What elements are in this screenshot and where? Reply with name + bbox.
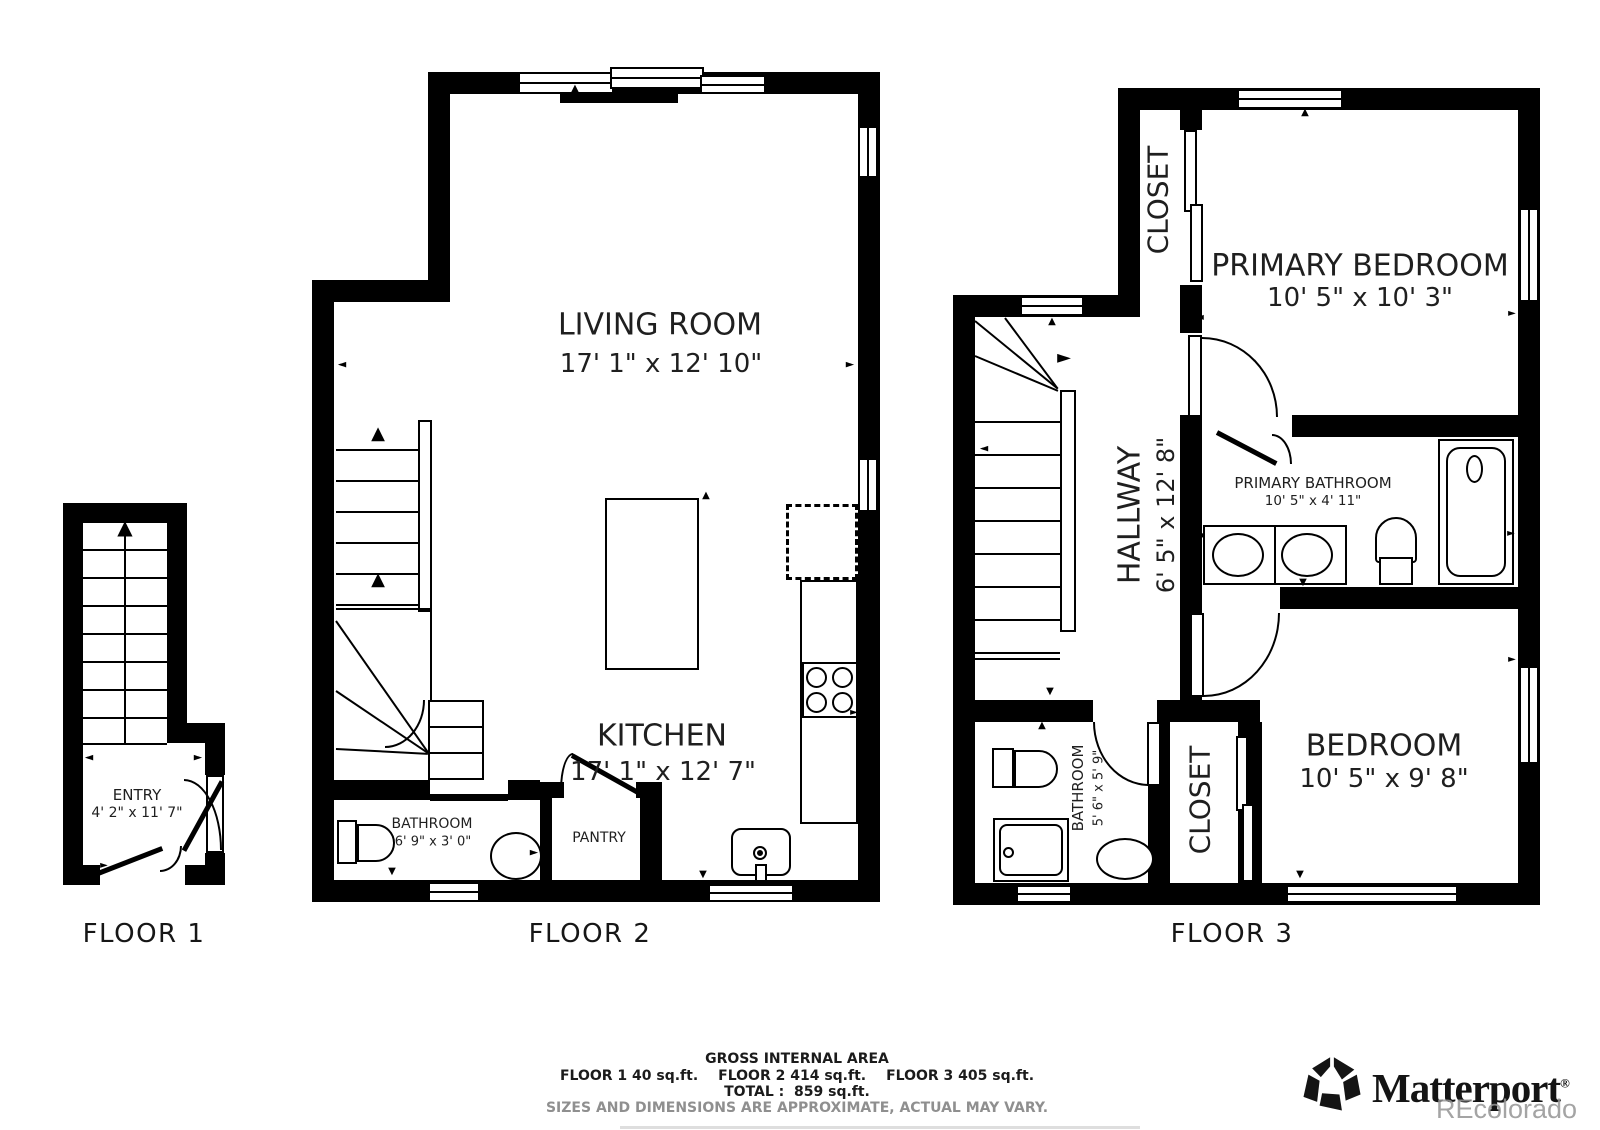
wall [953, 295, 975, 905]
door-swing-arc [1272, 434, 1292, 464]
wall [640, 782, 662, 880]
sink-basin [1096, 838, 1154, 880]
window [858, 126, 878, 178]
toilet-base [1379, 557, 1413, 585]
room-dims-entry: 4' 2" x 11' 7" [91, 805, 182, 821]
wall [1180, 285, 1202, 333]
direction-arrow-icon: ▼ [1046, 687, 1054, 697]
direction-arrow-icon: ▼ [699, 870, 707, 880]
room-label-bedroom: BEDROOM [1306, 729, 1463, 764]
door-swing-arc [1204, 613, 1280, 697]
closet-sliding-door [1242, 804, 1254, 882]
room-label-kitchen: KITCHEN [597, 719, 727, 754]
wall [205, 743, 225, 775]
stair-edge-line [83, 743, 167, 745]
window [1016, 885, 1072, 903]
registered-mark: ® [1560, 1075, 1569, 1090]
room-dims-living: 17' 1" x 12' 10" [560, 349, 762, 379]
recolorado-watermark: REcolorado [1436, 1094, 1577, 1125]
closet-sliding-door [1190, 204, 1203, 282]
direction-arrow-icon: ▼ [388, 867, 396, 877]
room-label-closet-upper: CLOSET [1142, 146, 1175, 255]
staircase [428, 700, 484, 780]
floor1-label: FLOOR 1 [83, 919, 206, 949]
direction-arrow-icon: ► [194, 752, 202, 763]
direction-arrow-icon: ► [1508, 309, 1516, 319]
floor3-label: FLOOR 3 [1171, 919, 1294, 949]
toilet-bowl [1014, 750, 1058, 788]
stair-up-arrow-icon: ▲ [117, 517, 132, 537]
door-swing-arc [1202, 337, 1278, 417]
toilet-tank [992, 748, 1014, 788]
door-leaf [1188, 335, 1202, 417]
direction-arrow-icon: ◄ [1196, 531, 1204, 541]
stair-up-arrow-icon: ▲ [371, 425, 385, 443]
shower-drain [1003, 847, 1014, 858]
wall [312, 880, 880, 902]
window [428, 882, 480, 902]
room-dims-bathroom3: 5' 6" x 5' 9" [1092, 750, 1107, 826]
wall [508, 780, 540, 800]
room-label-hallway: HALLWAY [1113, 446, 1148, 584]
disclaimer: SIZES AND DIMENSIONS ARE APPROXIMATE, AC… [546, 1100, 1048, 1116]
wall [334, 780, 430, 800]
window [1286, 885, 1458, 903]
floor3-area: FLOOR 3 405 sq.ft. [886, 1068, 1034, 1084]
direction-arrow-icon: ▲ [1301, 108, 1309, 118]
room-dims-bedroom: 10' 5" x 9' 8" [1299, 764, 1468, 794]
stair-edge-line [975, 658, 1060, 660]
matterport-logo-icon [1301, 1056, 1363, 1118]
faucet-stub [755, 864, 767, 882]
floor1-area: FLOOR 1 40 sq.ft. [560, 1068, 698, 1084]
stair-edge-line [430, 610, 432, 702]
wall [1180, 110, 1202, 130]
toilet-tank [337, 820, 357, 864]
page-edge-artifact [620, 1126, 1140, 1129]
direction-arrow-icon: ► [1507, 529, 1515, 539]
stair-winder-line [336, 748, 428, 755]
stove-burner [806, 692, 827, 713]
door-leaf [1147, 722, 1161, 786]
direction-arrow-icon: ► [530, 847, 538, 858]
room-dims-hallway: 6' 5" x 12' 8" [1152, 437, 1180, 593]
wall [1118, 88, 1140, 317]
direction-arrow-icon: ◄ [338, 359, 346, 370]
direction-arrow-icon: ▲ [1038, 721, 1046, 731]
wall [1157, 700, 1260, 722]
sink-basin [1212, 533, 1264, 577]
room-dims-kitchen: 17' 1" x 12' 7" [570, 757, 756, 787]
direction-arrow-icon: ▲ [571, 84, 579, 94]
wall [1292, 415, 1518, 437]
toilet-bowl [357, 824, 395, 862]
room-label-bathroom3: BATHROOM [1069, 745, 1087, 832]
wall [167, 503, 187, 743]
refrigerator [786, 504, 858, 580]
wall [167, 723, 225, 743]
window [1020, 296, 1084, 316]
stair-railing [1060, 390, 1076, 632]
wall [185, 865, 225, 885]
direction-arrow-icon: ► [1508, 655, 1516, 665]
sink-basin [1281, 533, 1333, 577]
direction-arrow-icon: ▲ [395, 784, 403, 794]
direction-arrow-icon: ◄ [980, 443, 988, 454]
vanity-divider [1274, 525, 1276, 585]
room-label-living: LIVING ROOM [558, 308, 762, 343]
floor2-label: FLOOR 2 [529, 919, 652, 949]
wall [312, 280, 334, 902]
direction-arrow-icon: ▼ [1299, 578, 1307, 588]
room-label-primary-bedroom: PRIMARY BEDROOM [1211, 249, 1509, 284]
staircase [975, 390, 1060, 660]
direction-arrow-icon: ► [100, 861, 108, 871]
floor-areas-line: FLOOR 1 40 sq.ft. FLOOR 2 414 sq.ft. FLO… [560, 1068, 1034, 1084]
door-swing-arc [160, 846, 182, 872]
stove-burner [806, 667, 827, 688]
stair-edge-line [336, 608, 432, 610]
door-leaf [1190, 613, 1204, 697]
stair-center-line [124, 523, 126, 745]
direction-arrow-icon: ► [846, 359, 854, 370]
window [858, 458, 878, 512]
wall [63, 503, 83, 885]
wall [1280, 587, 1518, 609]
direction-arrow-icon: ▲ [702, 491, 710, 501]
wall [428, 72, 450, 302]
tub-drain [1466, 455, 1483, 483]
room-label-entry: ENTRY [113, 786, 162, 804]
stove-burner [832, 667, 853, 688]
wall [975, 700, 1093, 722]
room-label-closet-lower: CLOSET [1184, 746, 1217, 855]
window [1237, 89, 1343, 109]
direction-arrow-icon: ▲ [1048, 317, 1056, 327]
room-label-bathroom2: BATHROOM [391, 816, 472, 832]
direction-arrow-icon: ◄ [1196, 313, 1204, 323]
total-area: TOTAL : 859 sq.ft. [724, 1084, 870, 1100]
stair-railing [418, 420, 432, 612]
stair-up-arrow-icon: ▲ [371, 571, 385, 589]
direction-arrow-icon: ► [850, 708, 858, 718]
direction-arrow-icon: ◄ [85, 752, 93, 763]
floor2-area: FLOOR 2 414 sq.ft. [718, 1068, 866, 1084]
closet-sliding-door [1184, 130, 1197, 212]
stair-arrow-icon: ► [1057, 349, 1071, 367]
wall [63, 865, 100, 885]
floorplan-canvas: ▲ ► ◄ ► ENTRY 4' 2" x 11' 7" FLOOR 1 ▲ ►… [0, 0, 1600, 1130]
door-leaf [1216, 430, 1278, 466]
room-dims-bathroom2: 6' 9" x 3' 0" [395, 835, 471, 850]
kitchen-island [605, 498, 699, 670]
sliding-door-track [560, 94, 678, 103]
faucet-dot [757, 850, 763, 856]
room-label-primary-bathroom: PRIMARY BATHROOM [1234, 474, 1391, 492]
window [518, 72, 614, 94]
room-label-pantry: PANTRY [572, 830, 626, 846]
window [1519, 666, 1539, 764]
room-dims-primary-bathroom: 10' 5" x 4' 11" [1265, 493, 1362, 509]
room-dims-primary-bedroom: 10' 5" x 10' 3" [1267, 283, 1453, 313]
window [708, 884, 794, 902]
pocket-door-line [430, 794, 508, 801]
window [1519, 208, 1539, 302]
stair-winder-line [335, 620, 428, 752]
direction-arrow-icon: ▼ [1296, 870, 1304, 880]
gross-internal-area-title: GROSS INTERNAL AREA [705, 1051, 889, 1067]
window [700, 75, 766, 94]
closet-sliding-door [1236, 736, 1248, 811]
sliding-door [610, 67, 704, 89]
